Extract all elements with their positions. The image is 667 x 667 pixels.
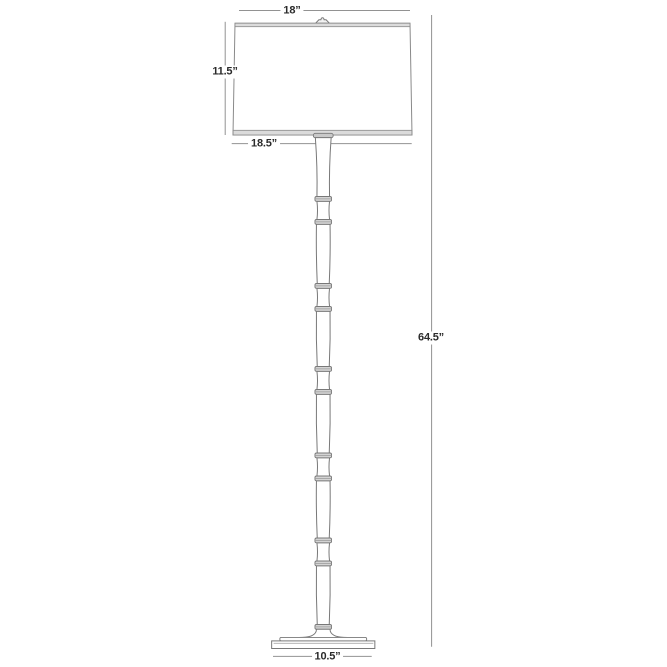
dimension-diagram: 18” 11.5” 18.5” 64.5” 10.5” xyxy=(0,0,667,667)
lamp-stem xyxy=(315,138,332,630)
lamp-stem-segment xyxy=(316,224,330,283)
lamp-stem-segment xyxy=(317,371,330,389)
lamp-base-flare xyxy=(283,629,364,637)
lamp-stem-segment xyxy=(317,201,330,219)
shade-bottom-width-label: 18.5” xyxy=(248,137,280,150)
lamp-shade-top-band xyxy=(235,23,410,27)
lamp-stem-segment xyxy=(316,566,330,625)
shade-height-label: 11.5” xyxy=(209,66,240,79)
lamp-stem-segment xyxy=(316,311,330,366)
lamp-stem-segment xyxy=(316,394,330,453)
lamp-stem-segment xyxy=(317,288,330,306)
lamp-shade xyxy=(233,23,412,135)
base-width-label: 10.5” xyxy=(312,650,344,663)
lamp-finial xyxy=(316,18,330,24)
lamp-base-plate xyxy=(272,641,375,649)
lamp-stem-segment xyxy=(316,481,330,538)
floor-lamp xyxy=(233,18,412,649)
lamp-stem-segment xyxy=(317,458,330,476)
shade-top-width-label: 18” xyxy=(280,4,303,17)
lamp-stem-segment xyxy=(317,543,330,561)
total-height-label: 64.5” xyxy=(415,332,447,345)
lamp-base-lip xyxy=(280,637,367,641)
lamp-stem-segment xyxy=(315,138,331,197)
lamp-drawing xyxy=(0,0,667,667)
